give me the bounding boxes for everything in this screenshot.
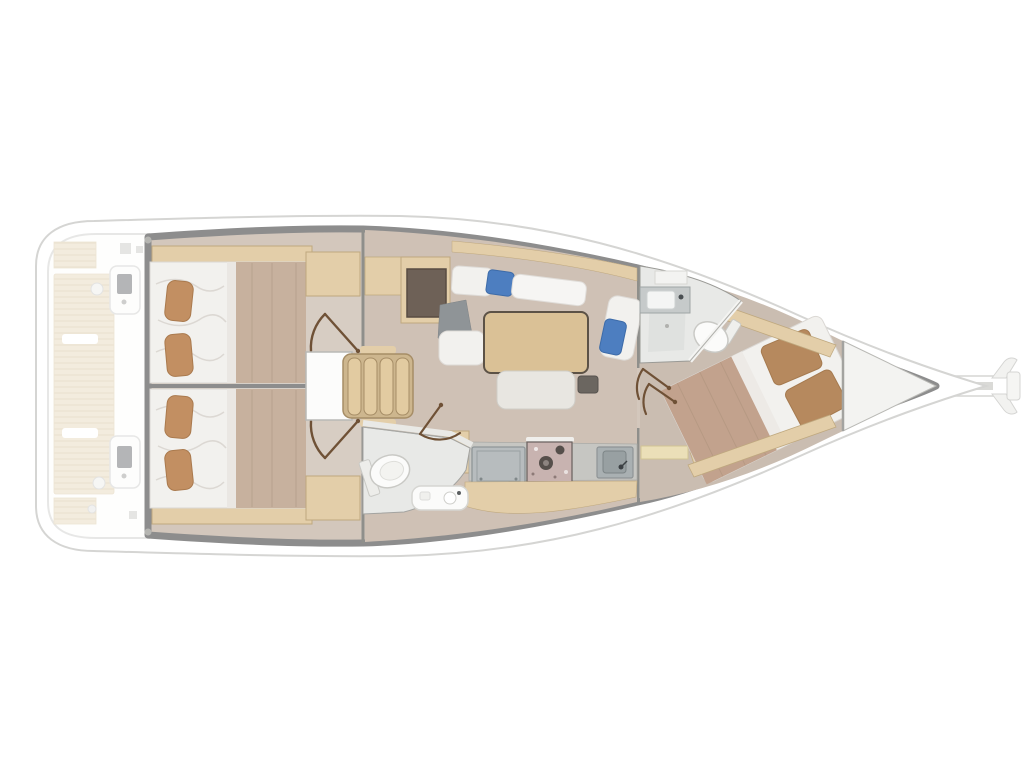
pillow: [164, 280, 194, 322]
deck-hinge-top: [145, 237, 152, 244]
settee-chaise: [439, 331, 485, 365]
bed-blanket: [236, 389, 315, 508]
step-rail-top: [360, 346, 396, 354]
helm-display-top: [117, 274, 132, 294]
teak-step-top: [54, 242, 96, 268]
head-sink: [640, 287, 690, 313]
bed-blanket: [236, 262, 315, 383]
salon-bench: [497, 371, 575, 409]
wardrobe: [306, 476, 360, 520]
burner: [556, 446, 565, 455]
sheet-fold: [227, 389, 237, 508]
salon-table: [484, 312, 588, 373]
pillow: [164, 449, 194, 491]
fridge: [472, 447, 525, 485]
basin: [647, 291, 675, 309]
platform-handle-bottom: [62, 428, 98, 438]
interior: [145, 229, 937, 543]
wardrobe: [306, 252, 360, 296]
helm-pedestal-top: [110, 266, 140, 314]
galley-sink: [597, 447, 633, 478]
anchor-roller-tip: [1007, 372, 1020, 400]
faucet: [679, 295, 684, 300]
swim-platform-teak: [54, 274, 114, 494]
sheet-fold: [227, 262, 237, 383]
headboard-shelf: [152, 506, 312, 524]
stove: [526, 437, 574, 482]
platform-handle-top: [62, 334, 98, 344]
boat-floorplan-page: [0, 0, 1024, 768]
vanity-sink: [412, 486, 468, 510]
pillow: [164, 333, 194, 377]
basin: [444, 492, 456, 504]
head-cabinet: [655, 271, 687, 284]
foot-locker: [641, 446, 688, 459]
pillow: [164, 395, 194, 439]
cockpit-ghost: [48, 234, 150, 538]
blue-throw-pillow: [485, 269, 514, 296]
faucet: [457, 491, 461, 495]
shower-drain: [665, 324, 669, 328]
salon-cabinet: [365, 257, 401, 295]
headboard-shelf: [152, 246, 312, 264]
deck-hinge-bottom: [145, 529, 152, 536]
helm-display-bottom: [117, 446, 132, 468]
boat-floorplan: [0, 0, 1024, 768]
helm-pedestal-bottom: [110, 436, 140, 488]
sink-basin: [603, 451, 626, 473]
companionway: [306, 346, 413, 427]
side-stool: [578, 376, 598, 393]
pot-rail: [526, 437, 574, 442]
